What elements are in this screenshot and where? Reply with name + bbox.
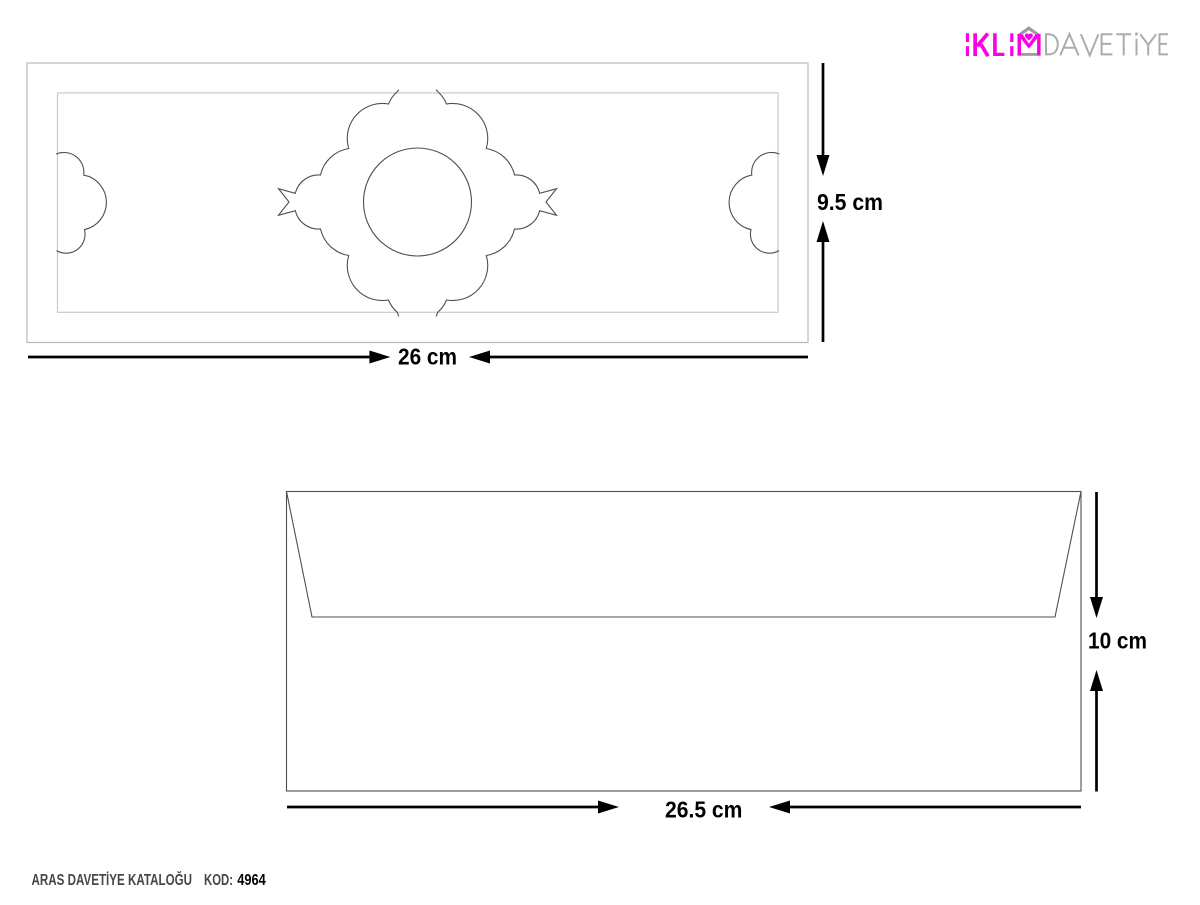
- svg-text:26 cm: 26 cm: [398, 344, 457, 370]
- svg-text:ARAS DAVETİYE KATALOĞUKOD:4964: ARAS DAVETİYE KATALOĞUKOD:4964: [32, 871, 267, 889]
- svg-text:9.5 cm: 9.5 cm: [817, 189, 883, 215]
- svg-text:10 cm: 10 cm: [1088, 628, 1147, 654]
- svg-text:26.5 cm: 26.5 cm: [665, 797, 742, 823]
